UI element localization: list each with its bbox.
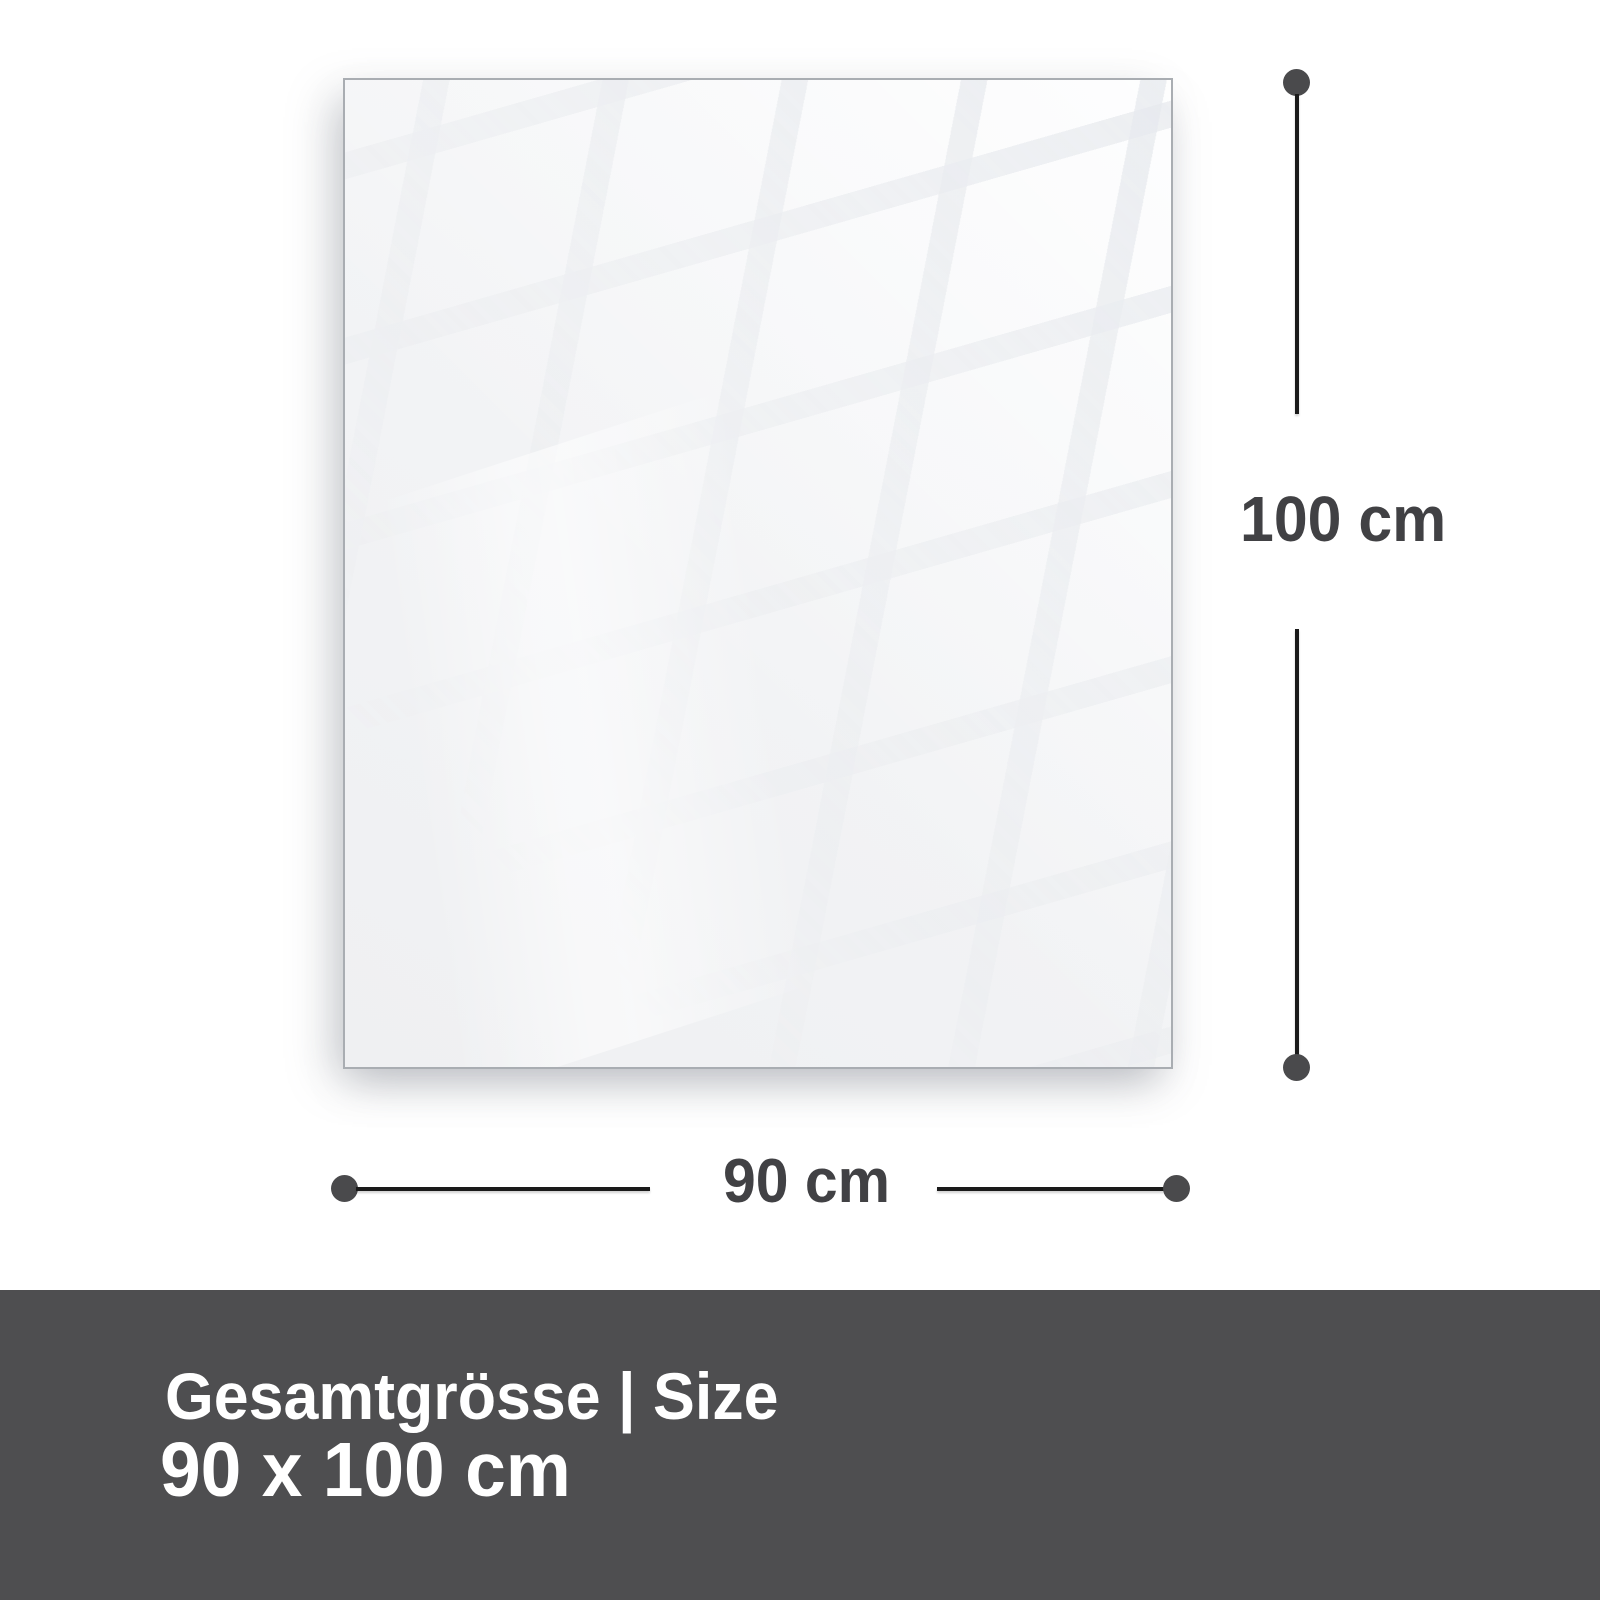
height-dimension-line-upper [1295,94,1299,414]
width-dimension-line-left [356,1187,650,1191]
dimension-endpoint-dot-right [1163,1175,1190,1202]
size-diagram: 100 cm 90 cm Gesamtgrösse | Size 90 x 10… [0,0,1600,1600]
height-dimension-line-lower [1295,629,1299,1056]
product-panel [343,78,1173,1069]
size-bar-value: 90 x 100 cm [160,1432,571,1509]
height-dimension-label: 100 cm [1240,487,1446,551]
dimension-endpoint-dot-bottom [1283,1054,1310,1081]
size-bar-title: Gesamtgrösse | Size [165,1363,778,1429]
dimension-endpoint-dot-left [331,1175,358,1202]
width-dimension-line-right [937,1187,1165,1191]
size-info-bar: Gesamtgrösse | Size 90 x 100 cm [0,1290,1600,1600]
width-dimension-label: 90 cm [723,1151,890,1213]
dimension-endpoint-dot-top [1283,69,1310,96]
